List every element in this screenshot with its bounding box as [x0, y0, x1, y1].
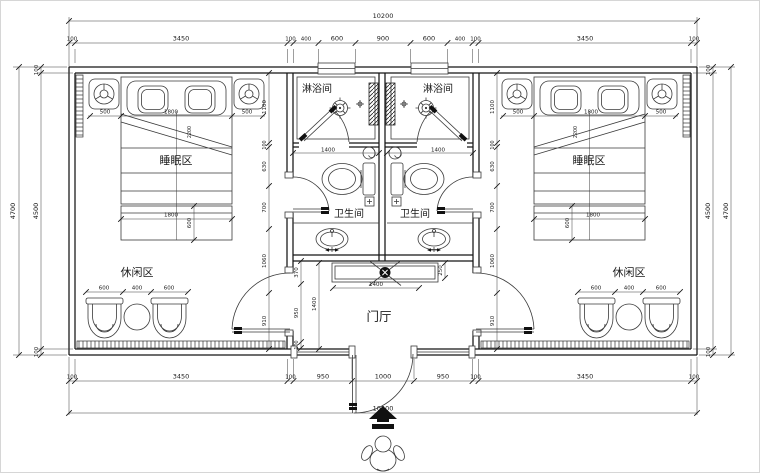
dim-label: 500: [100, 110, 111, 116]
bathroom-door-left: [293, 177, 329, 214]
ceiling-lamp-icon: [89, 79, 119, 109]
dim-total-top: 10200: [373, 12, 394, 20]
floor-plan: 10200 100 3450 100 400 600 900 600 400 1…: [1, 1, 760, 473]
dim-label: 2200: [573, 126, 579, 138]
ceiling-lamp-icon: [234, 79, 264, 109]
dim-label: 100: [67, 375, 78, 381]
furniture-layer: [86, 77, 680, 413]
dim-label: 1400: [431, 148, 445, 154]
dim-label: 400: [132, 286, 143, 292]
wall-lining-left: [76, 75, 83, 137]
dim-label: 100: [285, 37, 296, 43]
wall-lining-bottom-left: [77, 341, 285, 348]
room-label-layer: 淋浴间 淋浴间 睡眠区 睡眠区 卫生间 卫生间 休闲区 休闲区 门厅: [121, 82, 646, 324]
dim-label: 1800: [584, 110, 598, 116]
dim-label: 600: [331, 35, 343, 43]
dim-label: 1100: [490, 100, 496, 114]
vent-window-left: [318, 63, 355, 74]
dim-label: 1060: [490, 254, 496, 268]
sink-icon: [418, 229, 450, 253]
dim-label: 4500: [704, 203, 712, 220]
sink-icon: [316, 229, 348, 253]
dim-label: 100: [262, 140, 268, 149]
dim-label: 100: [34, 64, 40, 75]
dim-label: 1800: [164, 213, 178, 219]
room-label-sleeping-right: 睡眠区: [573, 154, 606, 167]
dim-label: 4500: [32, 203, 40, 220]
dim-label: 100: [689, 37, 700, 43]
tub-chair-icon: [86, 298, 123, 338]
dim-label: 100: [67, 37, 78, 43]
dim-label: 910: [490, 315, 496, 326]
dim-label: 1400: [312, 297, 318, 311]
dim-label: 100: [294, 340, 300, 349]
dim-label: 950: [294, 307, 300, 318]
side-table-icon: [124, 304, 150, 330]
dim-label: 1400: [321, 148, 335, 154]
dim-label: 1060: [262, 254, 268, 268]
room-label-sleeping-left: 睡眠区: [160, 154, 193, 167]
dim-label: 100: [470, 37, 481, 43]
wall-lining-bottom-right: [481, 341, 689, 348]
dim-label: 100: [706, 346, 712, 357]
dim-label: 630: [262, 161, 268, 172]
dim-label: 3450: [173, 35, 190, 43]
plumbing-shaft-right: [386, 83, 395, 125]
dim-label: 3450: [577, 35, 594, 43]
dim-label: 500: [242, 110, 253, 116]
dim-label: 3450: [173, 373, 190, 381]
wall-lining-right: [683, 75, 690, 137]
dim-label: 950: [317, 373, 329, 381]
person-icon: [359, 436, 406, 471]
dim-label: 600: [99, 286, 110, 292]
room-label-toilet-left: 卫生间: [334, 207, 364, 220]
dim-label: 400: [301, 37, 312, 43]
dim-label: 4700: [722, 203, 730, 220]
room-label-foyer: 门厅: [366, 309, 391, 324]
dim-label: 400: [455, 37, 466, 43]
room-label-toilet-right: 卫生间: [400, 207, 430, 220]
dim-label: 100: [470, 375, 481, 381]
dim-label: 3450: [577, 373, 594, 381]
bedroom-door-left: [232, 273, 290, 334]
dim-label: 900: [377, 35, 389, 43]
plumbing-shaft-left: [369, 83, 378, 125]
room-label-lounge-left: 休闲区: [121, 265, 154, 279]
ceiling-lamp-icon: [647, 79, 677, 109]
faucet-icon: [400, 100, 408, 108]
vent-window-right: [411, 63, 448, 74]
dim-label: 600: [591, 286, 602, 292]
dim-label: 100: [706, 64, 712, 75]
dim-label: 100: [285, 375, 296, 381]
room-label-lounge-right: 休闲区: [613, 265, 646, 279]
dim-label: 400: [624, 286, 635, 292]
dim-label: 250: [438, 265, 444, 276]
toilet-icon: [391, 163, 444, 195]
dim-label: 1000: [375, 373, 392, 381]
faucet-icon: [356, 100, 364, 108]
ceiling-lamp-icon: [502, 79, 532, 109]
dim-label: 910: [262, 315, 268, 326]
dim-label: 1100: [262, 100, 268, 114]
dim-label: 600: [187, 217, 193, 228]
dim-label: 1800: [164, 110, 178, 116]
dim-label: 4700: [9, 203, 17, 220]
dim-label: 500: [513, 110, 524, 116]
dim-label: 100: [34, 346, 40, 357]
dim-label: 100: [689, 375, 700, 381]
dim-label: 700: [490, 202, 496, 213]
dim-label: 600: [565, 217, 571, 228]
dim-label: 370: [294, 267, 300, 278]
dim-label: 950: [437, 373, 449, 381]
floor-plan-sheet: 10200 100 3450 100 400 600 900 600 400 1…: [0, 0, 760, 473]
room-label-shower-left: 淋浴间: [302, 82, 332, 95]
tub-chair-icon: [151, 298, 188, 338]
dim-label: 1400: [369, 282, 383, 288]
flush-box: [365, 197, 401, 206]
dim-label: 630: [490, 161, 496, 172]
tub-chair-icon: [578, 298, 615, 338]
toilet-icon: [322, 163, 375, 195]
dim-label: 700: [262, 202, 268, 213]
dim-label: 600: [164, 286, 175, 292]
dim-label: 100: [490, 140, 496, 149]
dim-label: 500: [656, 110, 667, 116]
dim-label: 600: [656, 286, 667, 292]
bathroom-door-right: [437, 177, 473, 214]
room-label-shower-right: 淋浴间: [423, 82, 453, 95]
dim-label: 600: [423, 35, 435, 43]
dim-label: 2200: [187, 126, 193, 138]
side-table-icon: [616, 304, 642, 330]
tub-chair-icon: [643, 298, 680, 338]
bedroom-door-right: [476, 273, 534, 334]
dim-label: 1800: [586, 213, 600, 219]
